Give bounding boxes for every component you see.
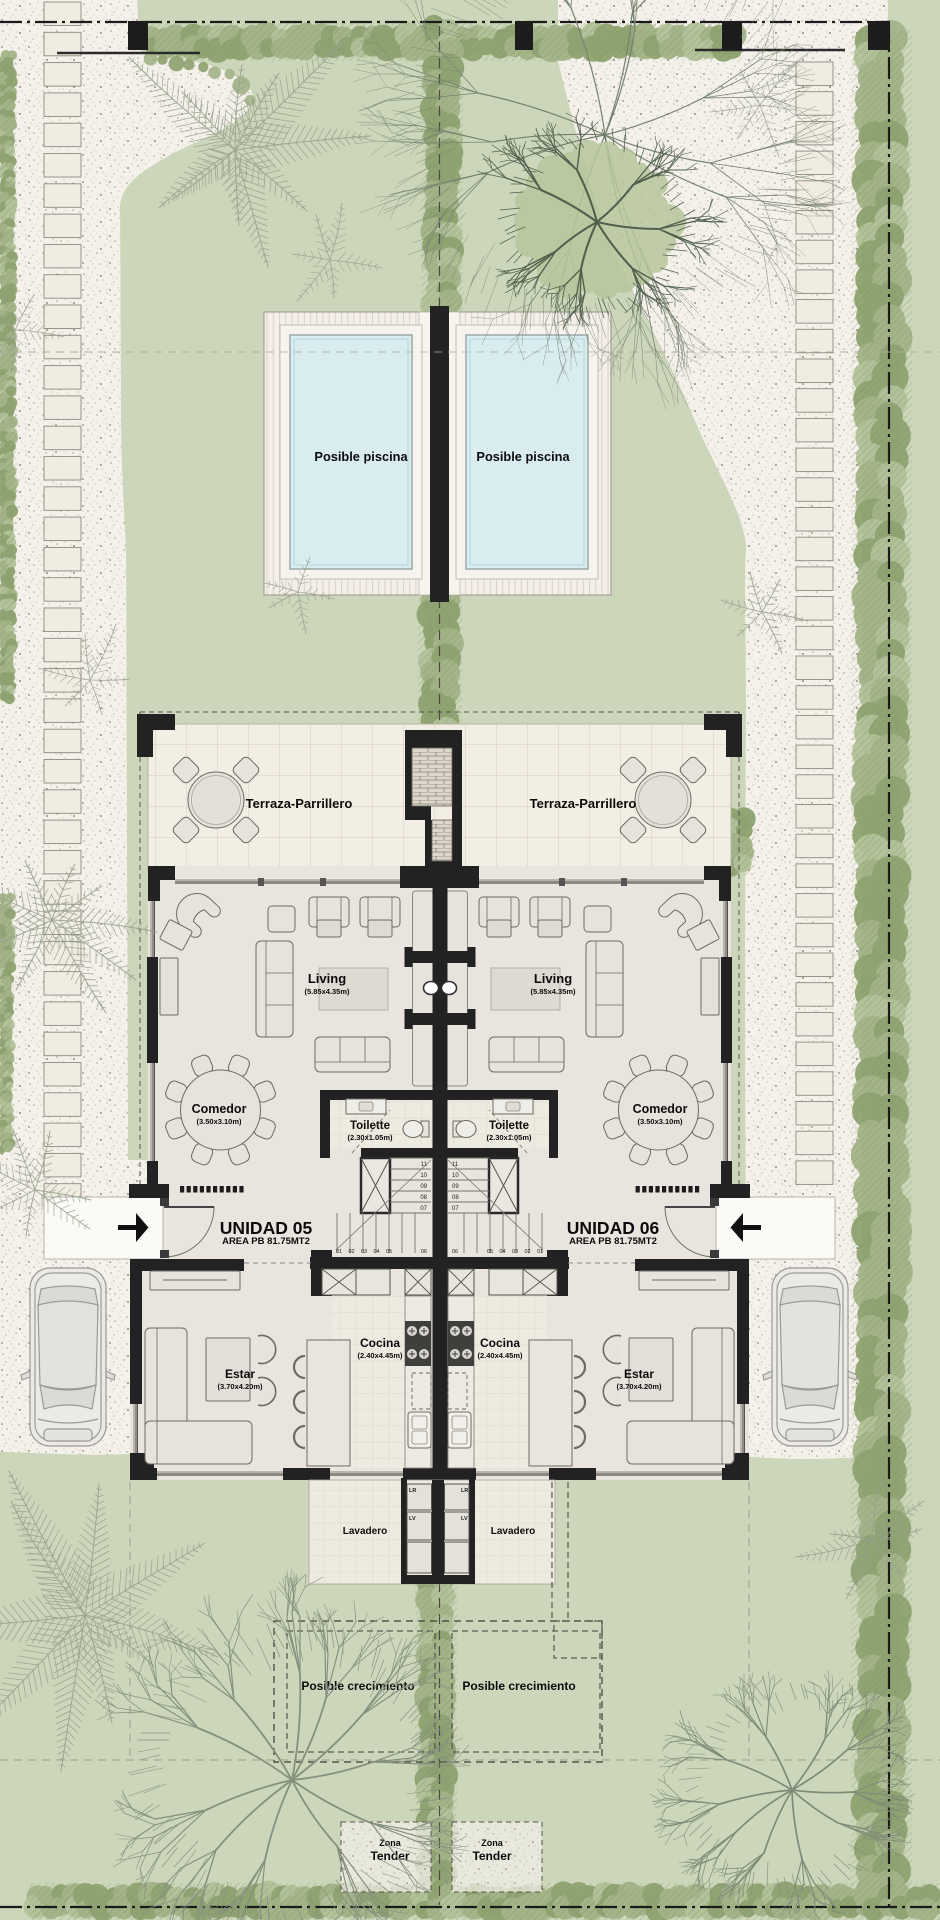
svg-text:Terraza-Parrillero: Terraza-Parrillero xyxy=(246,796,353,811)
svg-text:(2.40x4.45m): (2.40x4.45m) xyxy=(477,1351,523,1360)
svg-text:05: 05 xyxy=(487,1249,493,1255)
svg-text:AREA PB 81.75MT2: AREA PB 81.75MT2 xyxy=(569,1236,657,1247)
svg-text:(2.30x1.05m): (2.30x1.05m) xyxy=(347,1133,393,1142)
svg-text:Tender: Tender xyxy=(370,1849,409,1863)
svg-text:08: 08 xyxy=(452,1195,459,1201)
svg-text:(2.40x4.45m): (2.40x4.45m) xyxy=(357,1351,403,1360)
svg-text:(3.50x3.10m): (3.50x3.10m) xyxy=(196,1117,242,1126)
svg-text:Zona: Zona xyxy=(379,1838,401,1848)
svg-text:03: 03 xyxy=(512,1249,518,1255)
svg-text:04: 04 xyxy=(499,1249,505,1255)
svg-text:Cocina: Cocina xyxy=(480,1336,520,1350)
svg-text:Toilette: Toilette xyxy=(489,1120,529,1132)
svg-text:10: 10 xyxy=(420,1173,427,1179)
svg-text:01: 01 xyxy=(336,1249,342,1255)
svg-text:01: 01 xyxy=(537,1249,543,1255)
svg-text:05: 05 xyxy=(386,1249,392,1255)
svg-text:Comedor: Comedor xyxy=(192,1102,247,1116)
svg-text:AREA PB 81.75MT2: AREA PB 81.75MT2 xyxy=(222,1236,310,1247)
svg-text:LR: LR xyxy=(409,1488,416,1494)
svg-text:UNIDAD 06: UNIDAD 06 xyxy=(567,1218,660,1238)
svg-text:(5.85x4.35m): (5.85x4.35m) xyxy=(530,987,576,996)
svg-text:07: 07 xyxy=(420,1206,427,1212)
svg-text:06: 06 xyxy=(421,1249,427,1255)
svg-text:Cocina: Cocina xyxy=(360,1336,400,1350)
svg-text:04: 04 xyxy=(373,1249,379,1255)
svg-text:LV: LV xyxy=(461,1516,468,1522)
svg-text:07: 07 xyxy=(452,1206,459,1212)
svg-text:03: 03 xyxy=(361,1249,367,1255)
svg-text:10: 10 xyxy=(452,1173,459,1179)
svg-text:(3.70x4.20m): (3.70x4.20m) xyxy=(217,1382,263,1391)
svg-text:Estar: Estar xyxy=(225,1367,255,1381)
svg-text:Living: Living xyxy=(534,971,572,986)
svg-text:Comedor: Comedor xyxy=(633,1102,688,1116)
svg-text:08: 08 xyxy=(420,1195,427,1201)
svg-text:09: 09 xyxy=(452,1184,459,1190)
svg-text:09: 09 xyxy=(420,1184,427,1190)
svg-text:UNIDAD 05: UNIDAD 05 xyxy=(220,1218,313,1238)
svg-text:Posible piscina: Posible piscina xyxy=(476,449,570,464)
svg-text:(5.85x4.35m): (5.85x4.35m) xyxy=(304,987,350,996)
svg-text:LV: LV xyxy=(409,1516,416,1522)
svg-text:Zona: Zona xyxy=(481,1838,503,1848)
svg-text:06: 06 xyxy=(452,1249,458,1255)
svg-text:02: 02 xyxy=(524,1249,530,1255)
svg-text:Lavadero: Lavadero xyxy=(491,1526,535,1537)
svg-text:Posible piscina: Posible piscina xyxy=(314,449,408,464)
svg-text:(2.30x1.05m): (2.30x1.05m) xyxy=(486,1133,532,1142)
svg-text:Toilette: Toilette xyxy=(350,1120,390,1132)
svg-text:LR: LR xyxy=(461,1488,468,1494)
svg-text:Terraza-Parrillero: Terraza-Parrillero xyxy=(530,796,637,811)
svg-text:Tender: Tender xyxy=(472,1849,511,1863)
svg-text:Estar: Estar xyxy=(624,1367,654,1381)
svg-text:(3.70x4.20m): (3.70x4.20m) xyxy=(616,1382,662,1391)
svg-text:02: 02 xyxy=(348,1249,354,1255)
svg-text:Lavadero: Lavadero xyxy=(343,1526,387,1537)
svg-text:11: 11 xyxy=(421,1162,428,1168)
svg-text:(3.50x3.10m): (3.50x3.10m) xyxy=(637,1117,683,1126)
svg-text:Living: Living xyxy=(308,971,346,986)
svg-text:Posible crecimiento: Posible crecimiento xyxy=(462,1679,575,1693)
